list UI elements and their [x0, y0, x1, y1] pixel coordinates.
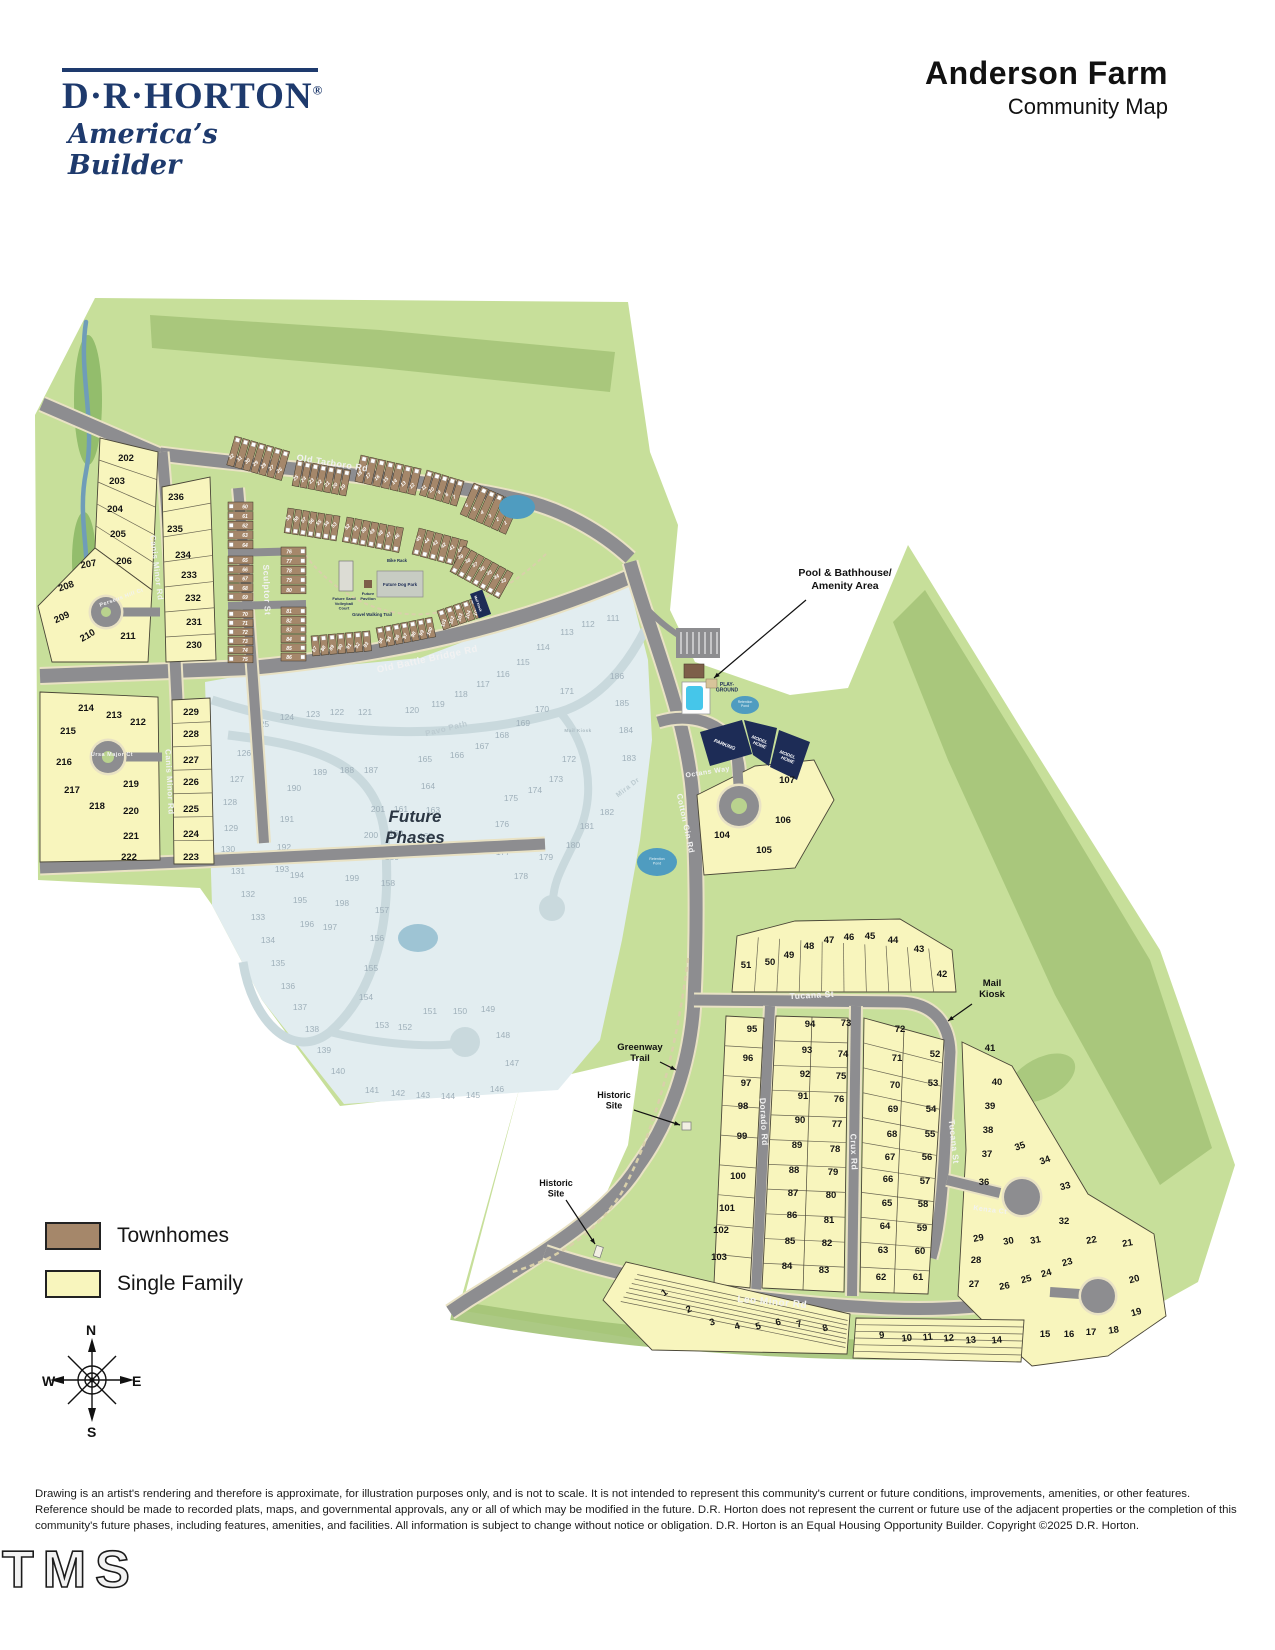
watermark-artifact: TMS	[2, 1540, 139, 1600]
future-lot-156: 156	[370, 933, 384, 943]
logo-name-text: D·R·HORTON	[62, 76, 313, 117]
future-lot-119: 119	[431, 699, 445, 709]
future-lot-190: 190	[287, 783, 301, 793]
townhome-lot-75: 75	[242, 657, 248, 663]
sf-lot-50: 50	[765, 957, 776, 968]
future-lot-120: 120	[405, 705, 419, 715]
sf-lot-11: 11	[922, 1332, 934, 1344]
street-label-ursa: Ursa Major Ct	[91, 752, 133, 758]
site-map: 1111121131141151161171181191201211221231…	[0, 0, 1275, 1650]
page-subtitle: Community Map	[925, 94, 1168, 120]
future-lot-129: 129	[224, 823, 238, 833]
sf-lot-59: 59	[917, 1223, 928, 1234]
sf-lot-223: 223	[183, 852, 199, 863]
sf-lot-216: 216	[56, 757, 72, 768]
sf-lot-72: 72	[895, 1024, 906, 1035]
sf-lot-12: 12	[943, 1333, 954, 1345]
future-lot-144: 144	[441, 1091, 455, 1101]
future-phases-label: Future	[389, 807, 442, 826]
townhome-lot-68: 68	[242, 586, 248, 592]
future-lot-152: 152	[398, 1022, 412, 1032]
sf-lot-88: 88	[789, 1165, 800, 1176]
sf-lot-14: 14	[991, 1335, 1003, 1347]
future-lot-143: 143	[416, 1090, 430, 1100]
sf-lot-98: 98	[738, 1101, 749, 1112]
townhomes-swatch	[45, 1222, 101, 1250]
sf-lot-81: 81	[824, 1215, 835, 1226]
sf-lot-28: 28	[971, 1255, 982, 1266]
future-lot-167: 167	[475, 741, 489, 751]
sf-lot-76: 76	[834, 1094, 845, 1105]
sf-lot-100: 100	[730, 1171, 746, 1182]
townhome-lot-69: 69	[242, 595, 248, 601]
sf-lot-22: 22	[1085, 1234, 1097, 1247]
future-lot-117: 117	[476, 679, 490, 689]
future-lot-139: 139	[317, 1045, 331, 1055]
townhome-lot-72: 72	[242, 630, 248, 636]
future-lot-181: 181	[580, 821, 594, 831]
townhome-lot-85: 85	[286, 646, 292, 652]
future-lot-124: 124	[280, 712, 294, 722]
sf-lot-230: 230	[186, 640, 202, 651]
sf-lot-96: 96	[743, 1053, 754, 1064]
callout-greenway: Greenway	[617, 1042, 663, 1053]
future-lot-116: 116	[496, 669, 510, 679]
sf-lot-234: 234	[175, 550, 192, 561]
sf-lot-206: 206	[116, 556, 132, 567]
future-lot-134: 134	[261, 935, 275, 945]
future-lot-171: 171	[560, 686, 574, 696]
future-lot-165: 165	[418, 754, 432, 764]
future-lot-187: 187	[364, 765, 378, 775]
registered-mark: ®	[313, 83, 324, 98]
future-lot-133: 133	[251, 912, 265, 922]
sf-lot-220: 220	[123, 806, 139, 817]
future-lot-173: 173	[549, 774, 563, 784]
townhome-lot-79: 79	[286, 578, 292, 584]
sf-lot-13: 13	[965, 1335, 976, 1347]
future-lot-185: 185	[615, 698, 629, 708]
callout-pool: Amenity Area	[811, 580, 878, 592]
single-family-swatch	[45, 1270, 101, 1298]
future-lot-195: 195	[293, 895, 307, 905]
townhomes-label: Townhomes	[117, 1224, 229, 1248]
future-lot-138: 138	[305, 1024, 319, 1034]
single-family-label: Single Family	[117, 1272, 243, 1296]
sf-lot-17: 17	[1086, 1327, 1097, 1338]
future-lot-183: 183	[622, 753, 636, 763]
sf-lot-79: 79	[828, 1167, 839, 1178]
future-lot-193: 193	[275, 864, 289, 874]
callout-historic-south: Site	[548, 1189, 565, 1199]
future-lot-135: 135	[271, 958, 285, 968]
sf-lot-236: 236	[168, 492, 184, 503]
future-lot-168: 168	[495, 730, 509, 740]
townhome-lot-77: 77	[286, 559, 292, 565]
sf-lot-235: 235	[167, 524, 184, 535]
sf-lot-48: 48	[804, 941, 815, 952]
sf-lot-53: 53	[928, 1078, 939, 1089]
future-lot-121: 121	[358, 707, 372, 717]
sf-lot-32: 32	[1059, 1216, 1070, 1227]
future-lot-189: 189	[313, 767, 327, 777]
townhome-strip-w1: 6061626364	[228, 502, 253, 549]
sf-lot-107: 107	[779, 775, 795, 786]
sf-lot-224: 224	[183, 829, 200, 840]
future-lot-172: 172	[562, 754, 576, 764]
sf-lot-71: 71	[892, 1053, 903, 1064]
future-lot-164: 164	[421, 781, 435, 791]
sf-lot-62: 62	[876, 1272, 887, 1283]
future-lot-126: 126	[237, 748, 251, 758]
sf-lot-95: 95	[747, 1024, 758, 1035]
sf-lot-91: 91	[798, 1091, 809, 1102]
future-lot-191: 191	[280, 814, 294, 824]
future-lot-178: 178	[514, 871, 528, 881]
street-label-sculptor: Sculptor St	[261, 564, 273, 615]
townhome-lot-86: 86	[286, 655, 292, 661]
townhome-lot-84: 84	[286, 637, 292, 643]
future-lot-123: 123	[306, 709, 320, 719]
sf-lot-15: 15	[1040, 1329, 1051, 1340]
future-lot-186: 186	[610, 671, 624, 681]
sf-lot-39: 39	[985, 1101, 996, 1112]
sf-lot-215: 215	[60, 726, 77, 737]
future-phases-label: Phases	[385, 828, 445, 847]
sf-lot-26: 26	[998, 1280, 1010, 1293]
poi-label-retention-2: Retention	[649, 857, 664, 861]
poi-label-playground: GROUND	[716, 688, 739, 694]
poi-label-bike-rack: Bike Rack	[387, 558, 408, 563]
poi-label-retention-1: Pond	[741, 704, 749, 708]
future-lot-131: 131	[231, 866, 245, 876]
sf-lot-66: 66	[883, 1174, 894, 1185]
future-lot-194: 194	[290, 870, 304, 880]
future-lot-113: 113	[560, 627, 574, 637]
sf-lot-60: 60	[915, 1246, 926, 1257]
sf-lot-18: 18	[1108, 1324, 1120, 1336]
sf-lot-55: 55	[925, 1129, 936, 1140]
sf-lot-58: 58	[918, 1199, 929, 1210]
future-lot-166: 166	[450, 750, 464, 760]
sf-lot-89: 89	[792, 1140, 803, 1151]
sf-lot-54: 54	[926, 1104, 937, 1115]
map-legend: Townhomes Single Family	[45, 1222, 243, 1318]
future-lot-180: 180	[566, 840, 580, 850]
legend-item-single-family: Single Family	[45, 1270, 243, 1298]
townhome-lot-73: 73	[242, 639, 248, 645]
sf-lot-221: 221	[123, 831, 140, 842]
future-lot-115: 115	[516, 657, 530, 667]
sf-lot-37: 37	[982, 1149, 993, 1160]
poi-label-retention-2: Pond	[653, 861, 661, 865]
future-lot-169: 169	[516, 718, 530, 728]
compass-star	[40, 1322, 144, 1440]
logo-name: D·R·HORTON®	[62, 78, 324, 117]
callout-historic-north: Site	[606, 1101, 623, 1111]
sf-lot-29: 29	[972, 1232, 984, 1245]
townhome-lot-67: 67	[242, 577, 248, 583]
townhome-strip-w2: 6566676869	[228, 556, 253, 601]
sf-lot-57: 57	[920, 1176, 931, 1187]
future-lot-184: 184	[619, 725, 633, 735]
future-lot-114: 114	[536, 642, 550, 652]
sf-lot-51: 51	[741, 960, 752, 971]
sf-lot-40: 40	[992, 1077, 1003, 1088]
sf-lot-232: 232	[185, 593, 201, 604]
future-lot-146: 146	[490, 1084, 504, 1094]
townhome-lot-82: 82	[286, 618, 292, 624]
sf-lot-102: 102	[713, 1225, 729, 1236]
townhome-lot-76: 76	[286, 549, 292, 555]
sf-lot-27: 27	[969, 1279, 980, 1290]
sf-lot-65: 65	[882, 1198, 893, 1209]
sf-lot-225: 225	[183, 804, 200, 815]
sf-lot-63: 63	[878, 1245, 889, 1256]
future-lot-132: 132	[241, 889, 255, 899]
callout-greenway: Trail	[630, 1053, 650, 1064]
future-lot-176: 176	[495, 819, 509, 829]
sf-lot-231: 231	[186, 617, 203, 628]
page-title: Anderson Farm	[925, 55, 1168, 92]
callout-mail-kiosk: Kiosk	[979, 989, 1006, 1000]
sf-lot-97: 97	[741, 1078, 752, 1089]
sf-lot-86: 86	[787, 1210, 798, 1221]
sf-lot-80: 80	[826, 1190, 837, 1201]
sf-lot-222: 222	[121, 852, 137, 863]
future-lot-150: 150	[453, 1006, 467, 1016]
sf-lot-56: 56	[922, 1152, 933, 1163]
sf-lot-105: 105	[756, 845, 773, 856]
callout-mail-kiosk: Mail	[983, 978, 1001, 989]
future-lot-148: 148	[496, 1030, 510, 1040]
future-lot-112: 112	[581, 619, 595, 629]
callout-pool: Pool & Bathhouse/	[798, 567, 891, 579]
compass-e: E	[132, 1373, 141, 1389]
sf-lot-228: 228	[183, 729, 199, 740]
future-lot-170: 170	[535, 704, 549, 714]
sf-lot-64: 64	[880, 1221, 891, 1232]
future-lot-137: 137	[293, 1002, 307, 1012]
poi-label-dog-park: Future Dog Park	[383, 582, 418, 587]
poi-label-pavilion: Pavilion	[360, 596, 376, 601]
sf-lot-87: 87	[788, 1188, 799, 1199]
townhome-lot-80: 80	[286, 588, 292, 594]
compass-n: N	[86, 1322, 96, 1338]
sf-lot-213: 213	[106, 710, 122, 721]
sf-lot-202: 202	[118, 453, 134, 464]
sf-lot-227: 227	[183, 755, 199, 766]
callout-historic-south: Historic	[539, 1178, 573, 1188]
sf-lot-106: 106	[775, 815, 791, 826]
street-label-mail-kiosk-future: Mail Kiosk	[564, 728, 591, 733]
sf-lot-47: 47	[824, 935, 835, 946]
callout-historic-north: Historic	[597, 1090, 631, 1100]
future-lot-199: 199	[345, 873, 359, 883]
logo-rule	[62, 68, 318, 72]
future-lot-149: 149	[481, 1004, 495, 1014]
disclaimer-text: Drawing is an artist's rendering and the…	[35, 1487, 1245, 1535]
sf-lot-10: 10	[901, 1333, 912, 1345]
sf-lot-68: 68	[887, 1129, 898, 1140]
townhome-lot-71: 71	[242, 621, 248, 627]
sf-lot-45: 45	[865, 931, 876, 942]
sf-lot-226: 226	[183, 777, 199, 788]
sf-lot-92: 92	[800, 1069, 811, 1080]
townhome-lot-62: 62	[242, 524, 248, 530]
future-lot-188: 188	[340, 765, 354, 775]
future-lot-136: 136	[281, 981, 295, 991]
sf-lot-61: 61	[913, 1272, 924, 1283]
future-lot-197: 197	[323, 922, 337, 932]
sf-lot-43: 43	[914, 944, 925, 955]
sf-lot-9: 9	[879, 1330, 885, 1341]
sf-lot-74: 74	[838, 1049, 849, 1060]
sf-lot-94: 94	[805, 1019, 816, 1030]
townhome-lot-83: 83	[286, 628, 292, 634]
future-lot-122: 122	[330, 707, 344, 717]
future-lot-111: 111	[607, 613, 620, 623]
townhome-lot-70: 70	[242, 612, 248, 618]
sf-lot-83: 83	[819, 1265, 830, 1276]
sf-lot-214: 214	[78, 703, 95, 714]
future-lot-201: 201	[371, 804, 385, 814]
sf-lot-218: 218	[89, 801, 105, 812]
sf-lot-42: 42	[937, 969, 948, 980]
sf-lot-77: 77	[832, 1119, 843, 1130]
sf-lot-93: 93	[802, 1045, 813, 1056]
sf-lot-38: 38	[983, 1125, 994, 1136]
sf-lot-229: 229	[183, 707, 199, 718]
future-lot-158: 158	[381, 878, 395, 888]
sf-lot-211: 211	[120, 631, 136, 642]
future-lot-198: 198	[335, 898, 349, 908]
sf-lot-36: 36	[979, 1177, 990, 1188]
future-lot-141: 141	[365, 1085, 379, 1095]
sf-lot-69: 69	[888, 1104, 899, 1115]
legend-item-townhomes: Townhomes	[45, 1222, 243, 1250]
sf-lot-70: 70	[890, 1080, 901, 1091]
future-lot-174: 174	[528, 785, 542, 795]
sf-lot-73: 73	[841, 1018, 852, 1029]
sf-lot-104: 104	[714, 830, 731, 841]
sf-lot-212: 212	[130, 717, 146, 728]
street-label-crux: Crux Rd	[848, 1133, 859, 1170]
sf-lot-204: 204	[107, 504, 124, 515]
sf-lot-99: 99	[737, 1131, 748, 1142]
sf-lot-30: 30	[1002, 1235, 1014, 1248]
future-lot-157: 157	[375, 905, 389, 915]
townhome-lot-60: 60	[242, 504, 248, 510]
compass-rose: N E S W	[40, 1322, 144, 1440]
future-lot-147: 147	[505, 1058, 519, 1068]
sf-lot-82: 82	[822, 1238, 833, 1249]
sf-lot-49: 49	[784, 950, 795, 961]
sf-lot-46: 46	[844, 932, 855, 943]
sf-lot-84: 84	[782, 1261, 793, 1272]
townhome-lot-64: 64	[242, 543, 248, 549]
sf-lot-41: 41	[985, 1043, 996, 1054]
poi-label-walking-trail: Gravel Walking Trail	[352, 612, 392, 617]
sf-lot-203: 203	[109, 476, 125, 487]
community-map-page: 1111121131141151161171181191201211221231…	[0, 0, 1275, 1650]
sf-lot-67: 67	[885, 1152, 896, 1163]
townhome-lot-81: 81	[286, 609, 292, 615]
sf-lot-217: 217	[64, 785, 80, 796]
sf-lot-103: 103	[711, 1252, 727, 1263]
townhome-lot-61: 61	[242, 514, 248, 520]
compass-s: S	[87, 1424, 96, 1440]
sf-lot-52: 52	[930, 1049, 941, 1060]
future-lot-127: 127	[230, 774, 244, 784]
sf-lot-75: 75	[836, 1071, 847, 1082]
future-lot-182: 182	[600, 807, 614, 817]
sf-lot-44: 44	[888, 935, 899, 946]
compass-w: W	[42, 1373, 55, 1389]
sf-lot-101: 101	[719, 1203, 736, 1214]
logo-tagline: America’s Builder	[68, 119, 324, 181]
future-lot-118: 118	[454, 689, 468, 699]
future-lot-154: 154	[359, 992, 373, 1002]
future-lot-153: 153	[375, 1020, 389, 1030]
future-lot-155: 155	[364, 963, 378, 973]
sf-lot-85: 85	[785, 1236, 796, 1247]
future-lot-196: 196	[300, 919, 314, 929]
future-lot-142: 142	[391, 1088, 405, 1098]
townhome-strip-e1: 7677787980	[281, 547, 306, 594]
future-lot-128: 128	[223, 797, 237, 807]
sf-lot-219: 219	[123, 779, 139, 790]
townhome-lot-63: 63	[242, 533, 248, 539]
sf-lot-233: 233	[181, 570, 197, 581]
townhome-lot-78: 78	[286, 569, 292, 575]
future-lot-151: 151	[423, 1006, 437, 1016]
future-lot-175: 175	[504, 793, 518, 803]
sf-lot-205: 205	[110, 529, 127, 540]
sf-lot-90: 90	[795, 1115, 806, 1126]
poi-label-volleyball: Court	[339, 606, 350, 611]
future-lot-179: 179	[539, 852, 553, 862]
future-lot-145: 145	[466, 1090, 480, 1100]
future-lot-200: 200	[364, 830, 378, 840]
townhome-lot-65: 65	[242, 558, 248, 564]
sf-lot-78: 78	[830, 1144, 841, 1155]
future-lot-140: 140	[331, 1066, 345, 1076]
townhome-lot-66: 66	[242, 567, 248, 573]
title-block: Anderson Farm Community Map	[925, 55, 1168, 120]
sf-lot-16: 16	[1064, 1329, 1075, 1340]
townhome-lot-74: 74	[242, 648, 248, 654]
drhorton-logo: D·R·HORTON® America’s Builder	[62, 68, 324, 181]
